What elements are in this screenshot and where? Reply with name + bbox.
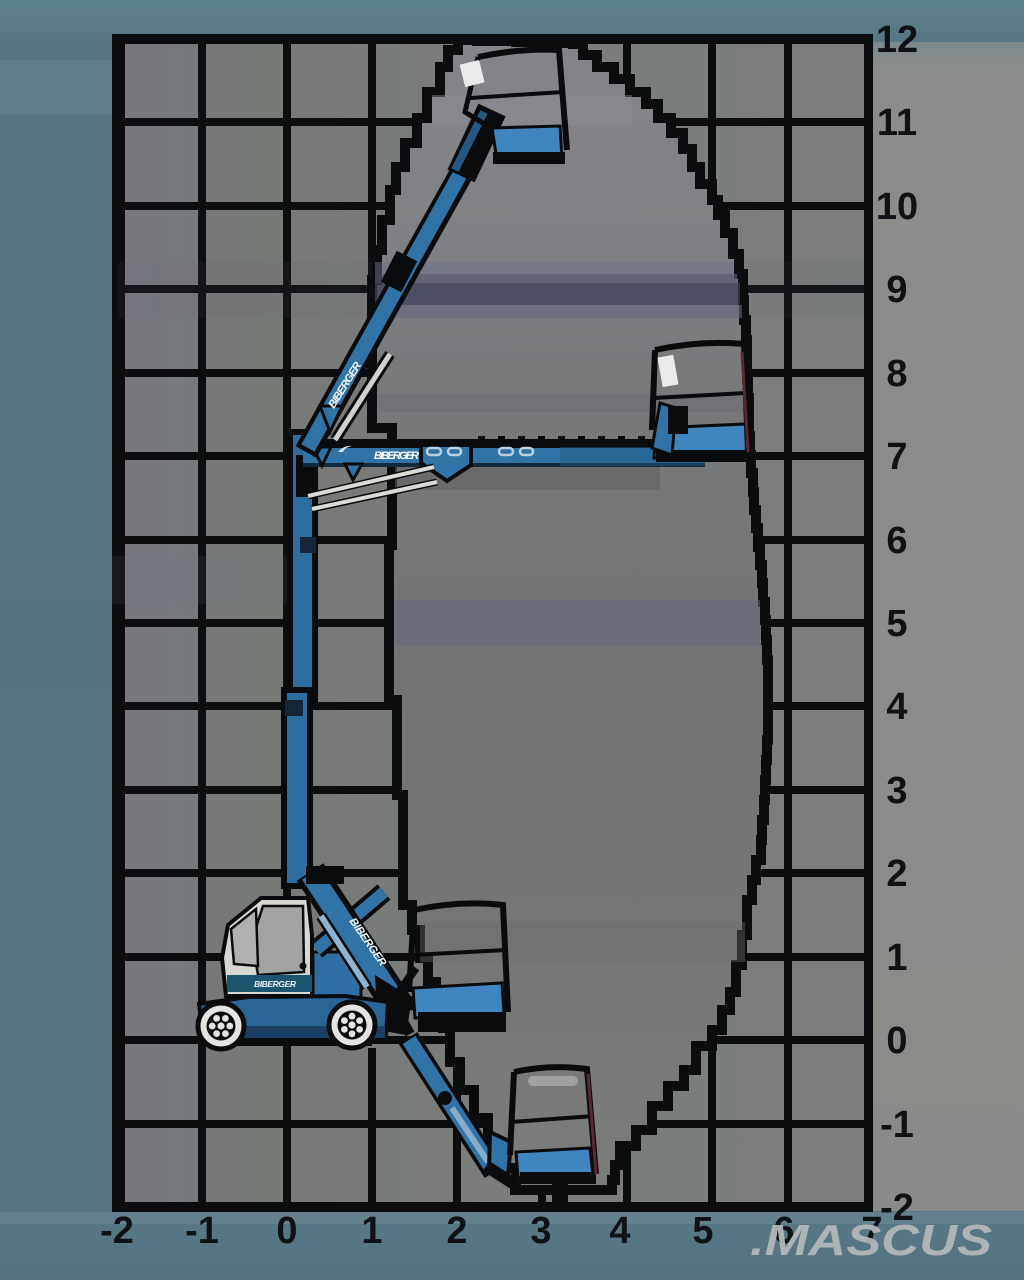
svg-text:-2: -2 — [100, 1210, 134, 1252]
svg-text:4: 4 — [609, 1210, 630, 1252]
svg-text:10: 10 — [876, 186, 918, 228]
svg-text:5: 5 — [692, 1210, 713, 1252]
svg-text:9: 9 — [886, 269, 907, 311]
svg-text:11: 11 — [877, 102, 917, 144]
svg-text:2: 2 — [886, 853, 907, 895]
svg-text:5: 5 — [886, 603, 907, 645]
svg-text:1: 1 — [886, 937, 907, 979]
svg-text:7: 7 — [886, 436, 907, 478]
svg-text:3: 3 — [530, 1210, 551, 1252]
svg-text:-1: -1 — [185, 1210, 219, 1252]
svg-text:BIBERGER: BIBERGER — [374, 450, 419, 462]
svg-text:BIBERGER: BIBERGER — [254, 979, 297, 989]
svg-text:2: 2 — [446, 1210, 467, 1252]
svg-text:1: 1 — [361, 1210, 382, 1252]
svg-text:12: 12 — [876, 19, 918, 61]
svg-text:4: 4 — [886, 686, 907, 728]
svg-text:.MASCUS: .MASCUS — [750, 1216, 992, 1265]
svg-text:6: 6 — [886, 520, 907, 562]
svg-text:-1: -1 — [880, 1104, 914, 1146]
svg-text:8: 8 — [886, 353, 907, 395]
svg-text:0: 0 — [886, 1020, 907, 1062]
svg-text:0: 0 — [276, 1210, 297, 1252]
svg-text:3: 3 — [886, 770, 907, 812]
